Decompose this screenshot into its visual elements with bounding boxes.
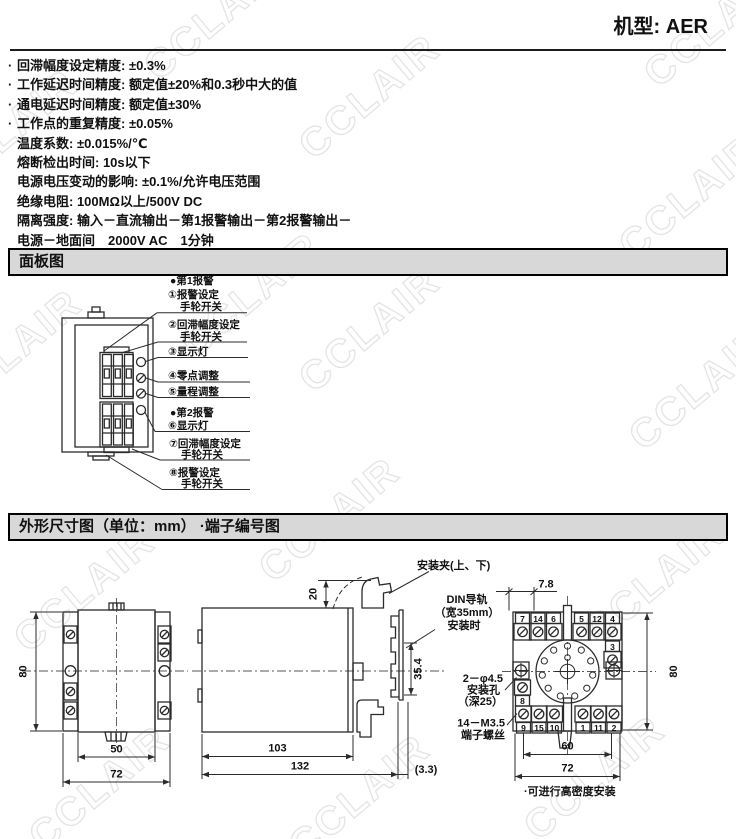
spec-text: 熔断检出时间: 10s以下 (17, 153, 151, 172)
mount-clip-bottom (357, 700, 384, 737)
side-view-dims (202, 572, 435, 780)
dim-clip-offset: 20 (308, 588, 320, 600)
dim-rail-height: 35.4 (413, 657, 425, 679)
panel-indicators (137, 358, 146, 415)
din-rail-profile (391, 616, 399, 697)
label-5: ⑤量程调整 (168, 385, 219, 398)
bullet (8, 211, 17, 230)
spec-line: 电源电压变动的影响: ±0.1%/允许电压范围 (8, 172, 351, 191)
dim-terminal-pitch: 7.8 (538, 579, 553, 591)
header-divider (10, 49, 726, 51)
dim-side-103: 103 (268, 743, 286, 755)
terminal-number: 2 (612, 723, 617, 733)
label-terminal-screw-1: 14－M3.5 (457, 718, 505, 730)
spec-line: 绝缘电阻: 100MΩ以上/500V DC (8, 192, 351, 211)
terminal-number: 10 (550, 723, 560, 733)
terminal-number: 15 (534, 723, 544, 733)
bullet: · (8, 56, 17, 75)
spec-text: 工作点的重复精度: ±0.05% (17, 114, 173, 133)
side-view (198, 577, 403, 738)
dim-front-outer-width: 72 (110, 769, 122, 781)
label-2b: 手轮开关 (180, 330, 222, 343)
dim-front-height: 80 (18, 665, 30, 677)
spec-text: 温度系数: ±0.015%/℃ (17, 134, 148, 153)
spec-line: ·通电延迟时间精度: 额定值±30% (8, 95, 351, 114)
dim-terminal-height: 80 (668, 665, 680, 677)
dim-front-inner-width: 50 (110, 744, 122, 756)
section-header-dimensions: 外形尺寸图（单位：mm） ·端子编号图 (8, 513, 728, 541)
label-8b: 手轮开关 (181, 477, 223, 490)
spec-text: 电源电压变动的影响: ±0.1%/允许电压范围 (17, 172, 260, 191)
spec-line: 温度系数: ±0.015%/℃ (8, 134, 351, 153)
dim-terminal-inner-width: 60 (561, 741, 573, 753)
dim-side-gap: (3.3) (415, 764, 438, 776)
thumbwheel-block-2 (100, 402, 133, 453)
spec-text: 绝缘电阻: 100MΩ以上/500V DC (17, 192, 202, 211)
label-2a: ②回滞幅度设定 (168, 318, 240, 331)
panel-callout-lines (104, 313, 250, 490)
lamp-1-icon (137, 358, 146, 367)
spec-list: ·回滞幅度设定精度: ±0.3% ·工作延迟时间精度: 额定值±20%和0.3秒… (8, 56, 351, 250)
spec-line: 隔离强度: 输入－直流输出－第1报警输出－第2报警输出－ (8, 211, 351, 230)
bullet (8, 172, 17, 191)
label-mount-hole-1: 2－φ4.5 (463, 673, 503, 685)
label-mount-hole-2: 安装孔 (467, 683, 500, 697)
page-title: 机型: AER (614, 10, 708, 39)
bullet (8, 134, 17, 153)
bullet (8, 192, 17, 211)
bullet: · (8, 114, 17, 133)
label-din-rail-1: DIN导轨 (447, 592, 488, 606)
label-4: ④零点调整 (168, 369, 219, 382)
note-high-density: ·可进行高密度安装 (524, 784, 616, 798)
terminal-number: 1 (581, 723, 586, 733)
front-view (63, 603, 171, 741)
terminal-number: 6 (551, 614, 556, 624)
spec-text: 隔离强度: 输入－直流输出－第1报警输出－第2报警输出－ (17, 211, 351, 230)
label-3: ③显示灯 (168, 345, 209, 358)
front-view-dims (30, 612, 170, 787)
spec-line: ·工作延迟时间精度: 额定值±20%和0.3秒中大的值 (8, 75, 351, 94)
bullet (8, 153, 17, 172)
terminal-number: 3 (610, 642, 615, 652)
spec-line: 熔断检出时间: 10s以下 (8, 153, 351, 172)
section-title: 面板图 (19, 253, 64, 270)
terminal-number: 8 (520, 696, 525, 706)
terminal-number: 7 (520, 614, 525, 624)
terminal-number: 5 (579, 614, 584, 624)
label-din-rail-2: （宽35mm） (435, 605, 500, 619)
terminal-number: 4 (610, 614, 615, 624)
label-mount-clip: 安装夹(上、下) (417, 558, 491, 572)
label-1b: 手轮开关 (180, 300, 222, 313)
label-din-rail-3: 安装时 (448, 618, 481, 632)
label-alarm1: ●第1报警 (170, 274, 214, 287)
lamp-2-icon (137, 406, 146, 415)
terminal-number: 12 (592, 614, 602, 624)
label-terminal-screw-2: 端子螺丝 (461, 728, 505, 742)
label-alarm2: ●第2报警 (170, 406, 214, 419)
label-1a: ①报警设定 (168, 288, 219, 301)
spec-text: 回滞幅度设定精度: ±0.3% (17, 56, 166, 75)
terminal-view (513, 606, 622, 749)
datasheet-page: CCLAIR CCLAIR CCLAIR CCLAIR CCLAIR CCLAI… (0, 0, 736, 839)
spec-text: 通电延迟时间精度: 额定值±30% (17, 95, 201, 114)
section-title: 外形尺寸图（单位：mm） ·端子编号图 (19, 518, 280, 535)
terminal-number: 9 (521, 723, 526, 733)
spec-line: ·工作点的重复精度: ±0.05% (8, 114, 351, 133)
mount-hole-left (513, 662, 529, 679)
spec-text: 工作延迟时间精度: 额定值±20%和0.3秒中大的值 (17, 75, 297, 94)
spec-line: ·回滞幅度设定精度: ±0.3% (8, 56, 351, 75)
label-mount-hole-3: （深25） (458, 694, 503, 708)
page-content: 机型: AER ·回滞幅度设定精度: ±0.3% ·工作延迟时间精度: 额定值±… (0, 0, 736, 839)
terminal-number: 14 (533, 614, 543, 624)
label-6: ⑥显示灯 (168, 419, 209, 432)
dim-terminal-outer-width: 72 (561, 763, 573, 775)
dimension-diagram: 80 50 72 (0, 545, 736, 839)
thumbwheel-block-1 (100, 347, 133, 399)
panel-diagram: ●第1报警 ①报警设定 手轮开关 ②回滞幅度设定 手轮开关 ③显示灯 ④零点调整… (0, 272, 736, 512)
mount-clip-top (362, 578, 392, 609)
dim-side-132: 132 (291, 761, 309, 773)
bullet: · (8, 95, 17, 114)
terminal-number: 11 (594, 723, 603, 733)
bullet: · (8, 75, 17, 94)
label-7b: 手轮开关 (181, 448, 223, 461)
